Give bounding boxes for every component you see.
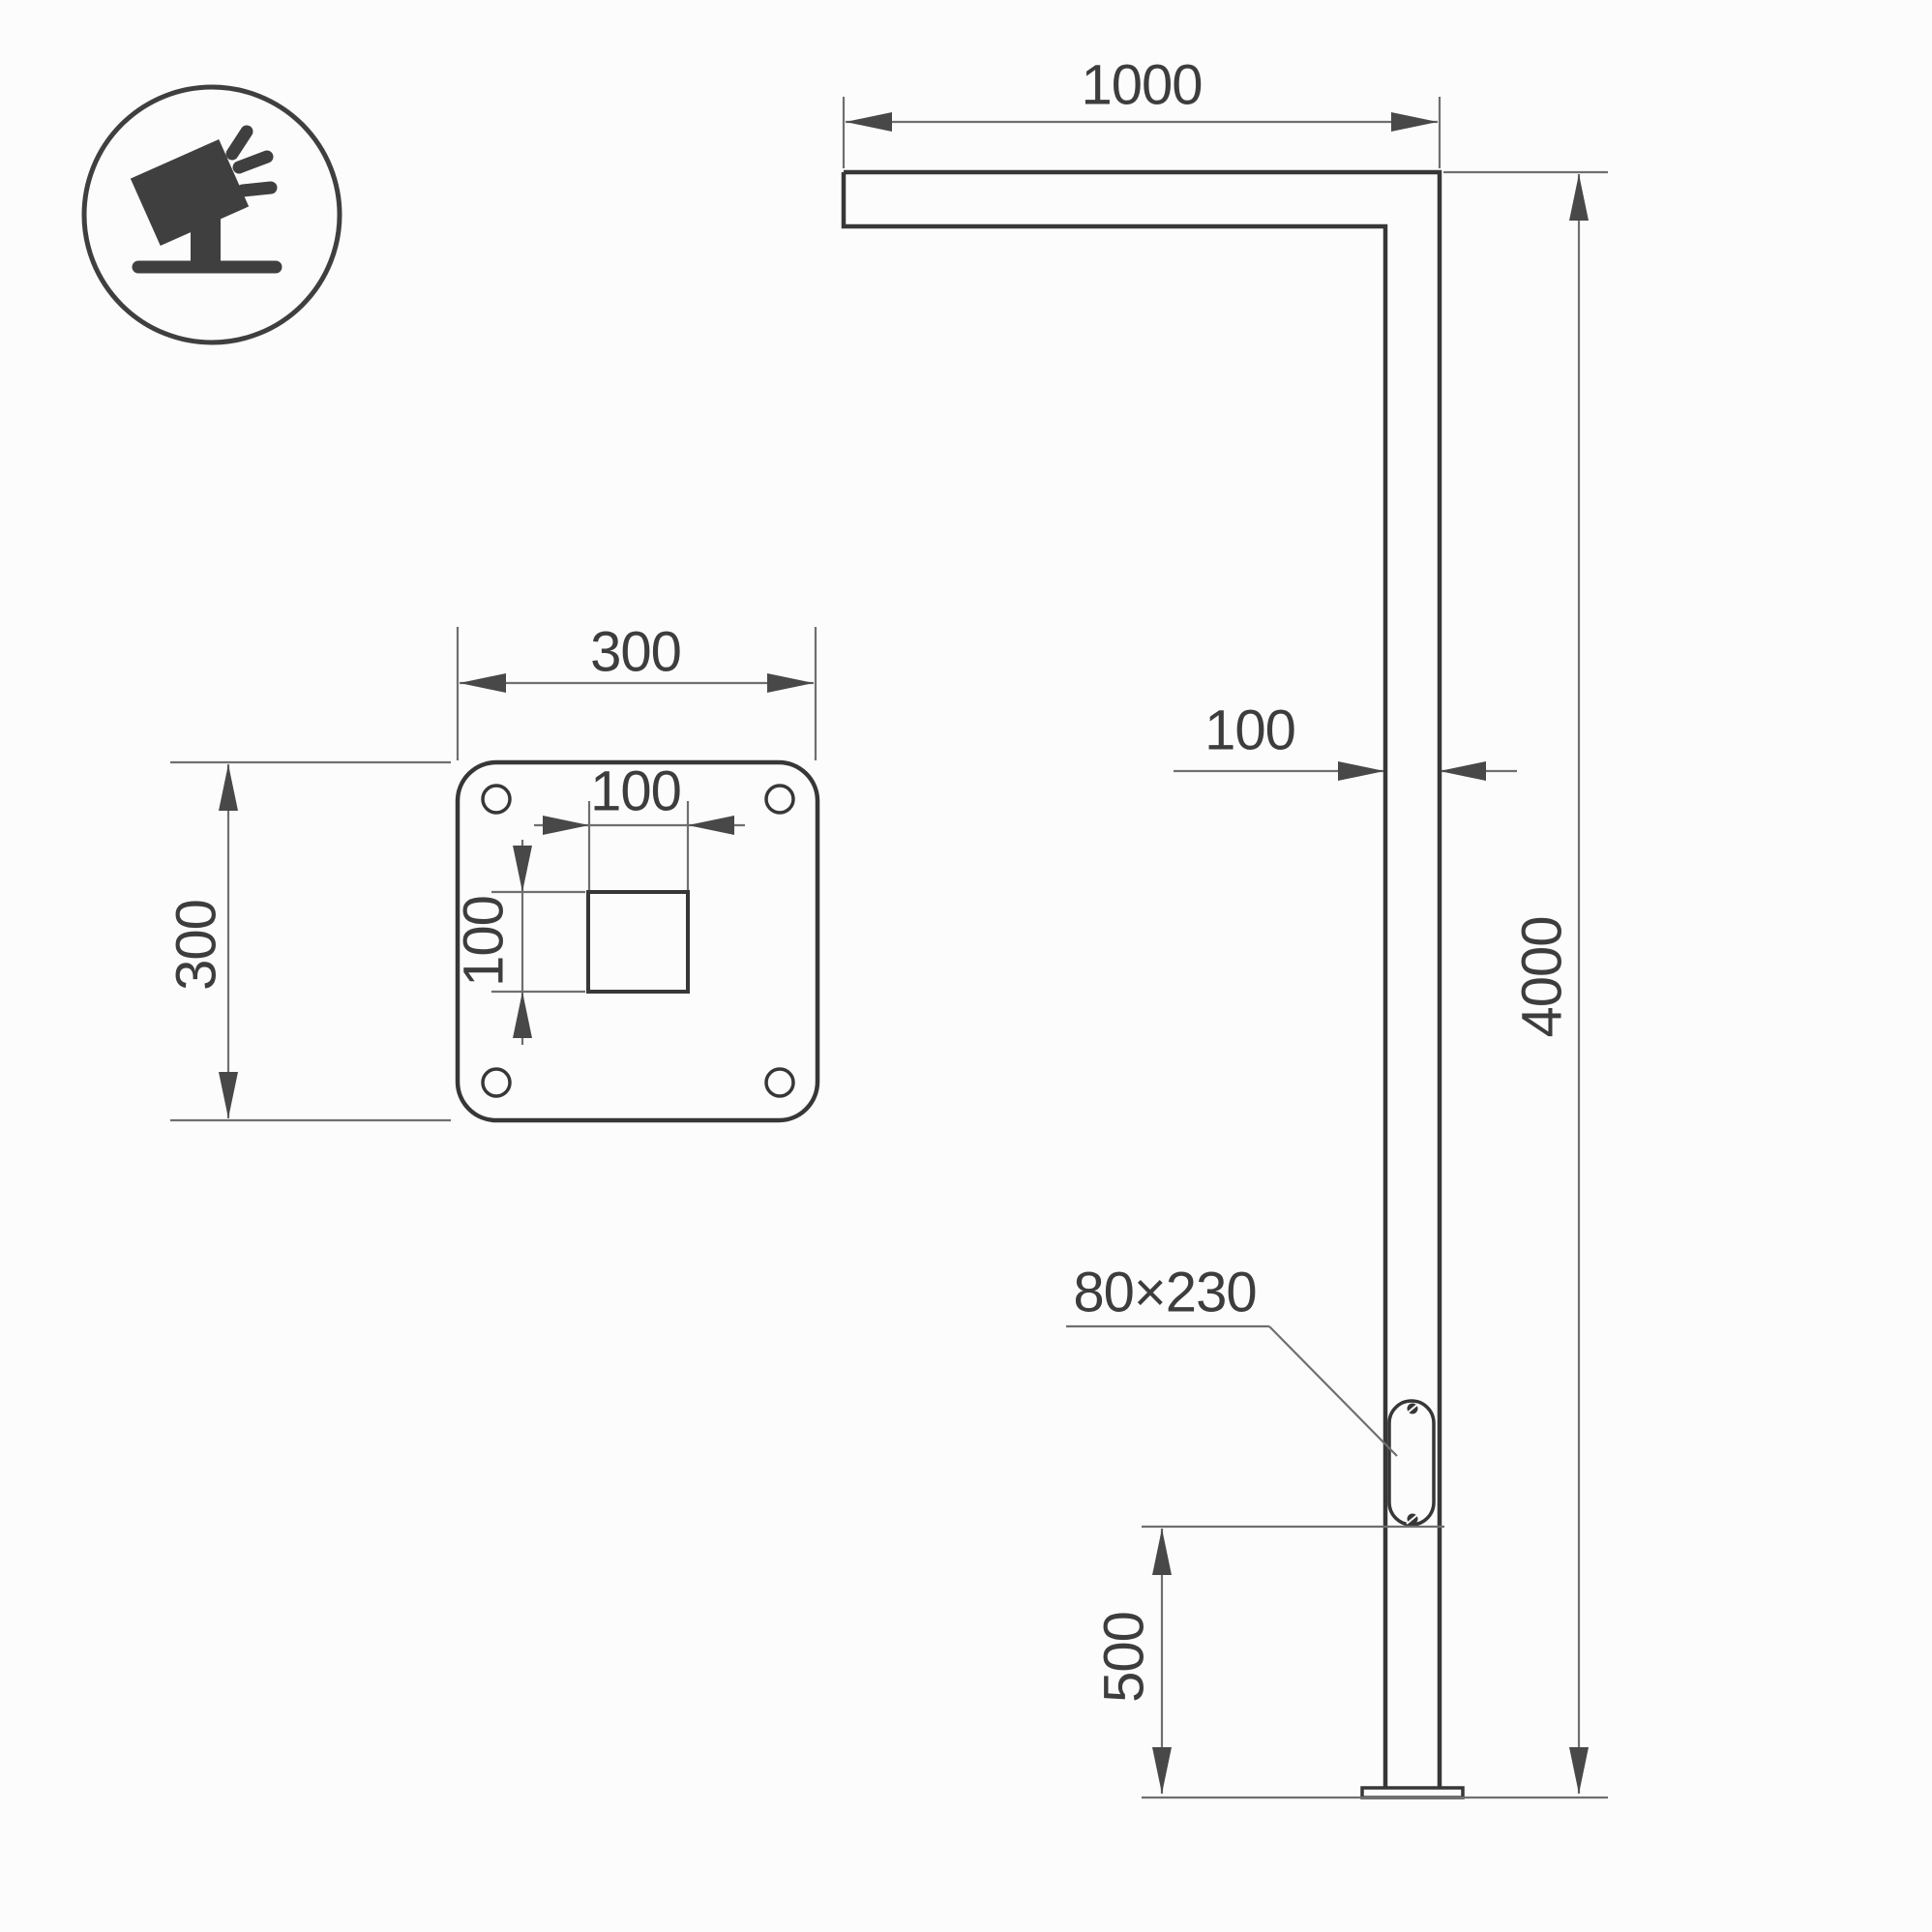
access-hatch (1389, 1401, 1434, 1525)
pole-dimension-drawing: 300 100 100 300 (0, 0, 1932, 1932)
bolt-hole-bottom-left (483, 1069, 510, 1096)
arrowhead-right (767, 673, 814, 693)
plate-width-value: 300 (590, 621, 681, 684)
floodlight-icon (84, 87, 340, 342)
arrowhead-left (846, 112, 892, 132)
arrowhead-top (219, 764, 238, 811)
arrowhead-top (1569, 174, 1589, 221)
arrowhead-right (1440, 761, 1486, 781)
hole-height-value: 100 (453, 896, 516, 987)
hatch-size-leader: 80×230 (1066, 1262, 1397, 1457)
arrowhead-bottom (1152, 1747, 1172, 1794)
light-ray-icon-2 (239, 157, 267, 167)
arm-length-value: 1000 (1081, 54, 1202, 117)
plate-width-dimension: 300 (458, 621, 816, 761)
arrowhead-top (513, 846, 532, 892)
pole-outline-inner (844, 172, 1385, 1788)
arrowhead-right (688, 816, 734, 835)
pole-height-value: 4000 (1511, 916, 1574, 1037)
bolt-hole-top-left (483, 786, 510, 813)
pole-width-dimension: 100 (1174, 699, 1517, 782)
hatch-elevation-value: 500 (1093, 1612, 1156, 1703)
plate-height-dimension: 300 (165, 762, 452, 1120)
hatch-size-value: 80×230 (1073, 1262, 1256, 1324)
leader-diagonal-line (1269, 1326, 1397, 1456)
center-square-hole (588, 892, 688, 992)
arrowhead-bottom (513, 992, 532, 1038)
technical-drawing-canvas: 300 100 100 300 (0, 0, 1932, 1932)
pole-outline-outer (844, 172, 1440, 1788)
arrowhead-left (460, 673, 506, 693)
light-ray-icon-1 (232, 132, 247, 154)
pole-height-dimension: 4000 (1443, 172, 1608, 1794)
bolt-hole-bottom-right (766, 1069, 793, 1096)
hatch-elevation-dimension: 500 (1093, 1527, 1445, 1794)
light-ray-icon-3 (243, 188, 271, 191)
hole-height-dimension: 100 (453, 840, 586, 1045)
arrowhead-top (1152, 1529, 1172, 1575)
hatch-outline (1389, 1401, 1434, 1525)
pole-width-value: 100 (1204, 699, 1295, 762)
arrowhead-left (543, 816, 589, 835)
arrowhead-bottom (219, 1072, 238, 1118)
hole-width-value: 100 (590, 760, 681, 823)
plate-height-value: 300 (165, 900, 228, 991)
arrowhead-bottom (1569, 1747, 1589, 1794)
base-plate-view: 300 100 100 300 (165, 621, 818, 1121)
arrowhead-right (1391, 112, 1438, 132)
arm-length-dimension: 1000 (844, 54, 1440, 169)
base-flange (1362, 1788, 1463, 1798)
bolt-hole-top-right (766, 786, 793, 813)
pole-front-view: 1000 100 4000 500 (844, 54, 1608, 1798)
hole-width-dimension: 100 (534, 760, 745, 891)
arrowhead-left (1338, 761, 1384, 781)
